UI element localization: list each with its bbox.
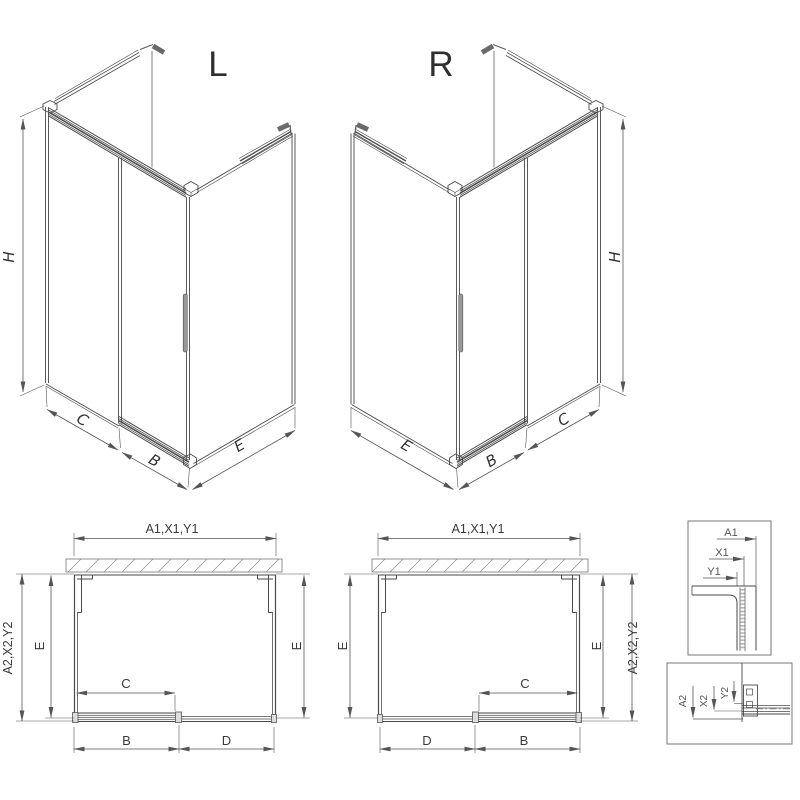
detail-top-dim-x1: X1 bbox=[715, 547, 728, 559]
plan-left-dim-d: D bbox=[222, 733, 231, 748]
plan-left-dim-top: A1,X1,Y1 bbox=[146, 522, 199, 536]
iso-right-dim-h: H bbox=[606, 251, 624, 262]
plan-left-dim-b: B bbox=[122, 733, 131, 748]
iso-left-dim-h: H bbox=[0, 251, 18, 262]
iso-right-dim-b: B bbox=[483, 450, 501, 471]
variant-left-title: L bbox=[208, 45, 227, 84]
iso-left-dim-b: B bbox=[146, 450, 164, 471]
plan-left-dim-side: A2,X2,Y2 bbox=[1, 622, 15, 675]
detail-bottom-dim-a2: A2 bbox=[678, 694, 689, 707]
detail-bottom-dim-y2: Y2 bbox=[720, 686, 731, 699]
plan-right-dim-side: A2,X2,Y2 bbox=[626, 622, 640, 675]
technical-drawing-canvas: L R H C B E H C B E A1,X1,Y1 A2,X2,Y2 E … bbox=[0, 0, 800, 800]
detail-view-top bbox=[688, 521, 771, 655]
wall-hatch-right bbox=[372, 559, 583, 572]
detail-top-dim-y1: Y1 bbox=[707, 566, 720, 578]
wall-hatch-left bbox=[68, 559, 279, 572]
plan-right-dim-d: D bbox=[422, 733, 431, 748]
plan-right-dim-top: A1,X1,Y1 bbox=[452, 522, 505, 536]
plan-right-dim-e-left: E bbox=[335, 641, 350, 650]
plan-drawing-left bbox=[16, 533, 310, 753]
iso-drawing-right bbox=[351, 45, 626, 490]
drawing-page: L R H C B E H C B E A1,X1,Y1 A2,X2,Y2 E … bbox=[0, 0, 800, 800]
detail-bottom-dim-x2: X2 bbox=[699, 694, 710, 707]
iso-right-dim-c: C bbox=[554, 409, 573, 430]
plan-right-dim-c: C bbox=[520, 676, 529, 691]
iso-left-dim-e: E bbox=[231, 435, 249, 456]
iso-drawing-left bbox=[20, 45, 295, 490]
plan-left-dim-c: C bbox=[121, 676, 130, 691]
plan-right-dim-b: B bbox=[520, 733, 529, 748]
iso-left-dim-c: C bbox=[73, 409, 92, 430]
iso-right-dim-e: E bbox=[398, 436, 416, 457]
plan-left-dim-e-right: E bbox=[289, 641, 304, 650]
plan-right-dim-e-right: E bbox=[589, 641, 604, 650]
detail-top-dim-a1: A1 bbox=[724, 527, 737, 539]
plan-left-dim-e-left: E bbox=[32, 641, 47, 650]
variant-right-title: R bbox=[428, 45, 453, 84]
